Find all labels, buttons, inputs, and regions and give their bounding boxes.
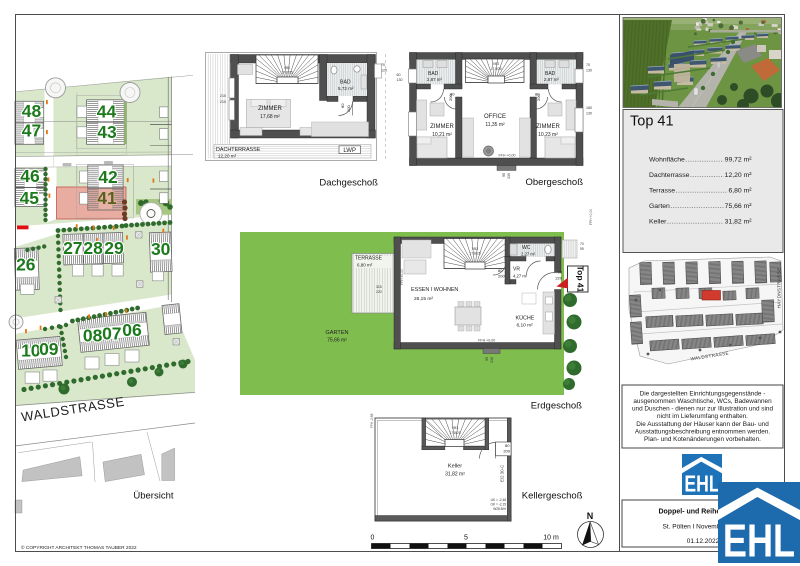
svg-text:26,15 m²: 26,15 m² <box>414 296 433 302</box>
svg-text:WC: WC <box>522 245 531 251</box>
svg-text:130: 130 <box>586 112 592 116</box>
svg-text:60: 60 <box>397 73 401 77</box>
svg-text:46: 46 <box>20 166 40 186</box>
svg-text:80: 80 <box>505 443 510 448</box>
svg-text:Keller: Keller <box>649 219 667 226</box>
svg-text:17,8/25: 17,8/25 <box>281 71 292 75</box>
svg-text:Die dargestellten Einrichtungs: Die dargestellten Einrichtungsgegenständ… <box>640 390 766 397</box>
svg-text:26: 26 <box>16 255 36 275</box>
svg-text:11,35 m²: 11,35 m² <box>485 122 505 128</box>
svg-text:Garten: Garten <box>649 203 670 210</box>
svg-text:Ausstattungsbeschreibung entno: Ausstattungsbeschreibung entnommen werde… <box>635 428 771 435</box>
svg-text:EHL: EHL <box>684 470 719 496</box>
svg-text:FFH -2,88: FFH -2,88 <box>370 413 374 428</box>
svg-text:220: 220 <box>376 290 382 294</box>
svg-text:80: 80 <box>340 103 345 108</box>
svg-text:10 m: 10 m <box>543 535 559 542</box>
svg-text:Terrasse: Terrasse <box>649 188 675 195</box>
svg-text:200: 200 <box>346 105 351 112</box>
svg-text:10,23 m²: 10,23 m² <box>538 132 558 138</box>
svg-text:4,27 m²: 4,27 m² <box>513 274 528 279</box>
svg-text:VB3: VB3 <box>452 426 459 430</box>
svg-text:OK = -2,15: OK = -2,15 <box>490 503 506 507</box>
svg-text:44: 44 <box>97 101 117 121</box>
svg-text:FFH ±0,00: FFH ±0,00 <box>400 269 404 285</box>
svg-text:5,72 m²: 5,72 m² <box>338 86 354 91</box>
svg-text:315: 315 <box>376 285 382 289</box>
svg-text:48: 48 <box>22 101 42 121</box>
svg-text:VB3: VB3 <box>493 62 500 66</box>
svg-text:17,8/25: 17,8/25 <box>449 431 460 435</box>
svg-text:70: 70 <box>586 63 590 67</box>
svg-text:17,8/25: 17,8/25 <box>469 252 480 256</box>
svg-text:Dachterrasse: Dachterrasse <box>649 172 690 179</box>
svg-text:43: 43 <box>97 122 117 142</box>
svg-text:99,72 m²: 99,72 m² <box>725 157 753 164</box>
svg-text:17,68 m²: 17,68 m² <box>260 114 280 120</box>
svg-text:Übersicht: Übersicht <box>133 491 173 502</box>
svg-text:2,87 m²: 2,87 m² <box>427 77 442 82</box>
svg-text:HAYDNSTRASSE: HAYDNSTRASSE <box>777 268 782 309</box>
svg-text:0: 0 <box>371 535 375 542</box>
svg-text:OFFICE: OFFICE <box>484 114 506 120</box>
svg-text:200: 200 <box>536 94 541 101</box>
svg-text:130: 130 <box>397 78 403 82</box>
svg-text:ZIMMER: ZIMMER <box>430 124 454 130</box>
svg-text:130: 130 <box>490 357 494 363</box>
svg-text:EHL: EHL <box>723 515 795 566</box>
svg-text:130: 130 <box>507 173 511 179</box>
svg-text:6,80 m²: 6,80 m² <box>728 188 752 195</box>
svg-text:ZIMMER: ZIMMER <box>536 124 560 130</box>
svg-text:120: 120 <box>381 69 387 73</box>
svg-text:Top 41: Top 41 <box>576 266 586 293</box>
svg-text:DACHTERRASSE: DACHTERRASSE <box>216 147 261 153</box>
svg-text:Obergeschoß: Obergeschoß <box>525 177 583 188</box>
svg-text:200: 200 <box>498 274 505 279</box>
svg-text:ESSEN I WOHNEN: ESSEN I WOHNEN <box>411 287 458 293</box>
svg-text:Kellergeschoß: Kellergeschoß <box>522 490 583 501</box>
svg-text:200: 200 <box>503 448 510 453</box>
svg-text:Dachgeschoß: Dachgeschoß <box>319 177 378 188</box>
svg-text:VR: VR <box>513 267 520 273</box>
svg-text:30: 30 <box>151 239 171 259</box>
svg-text:29: 29 <box>104 238 124 258</box>
svg-text:6,80 m²: 6,80 m² <box>357 263 373 268</box>
svg-text:UK = -2,48: UK = -2,48 <box>491 498 507 502</box>
svg-text:70: 70 <box>580 242 584 246</box>
svg-text:FFH +0,00: FFH +0,00 <box>478 339 495 343</box>
svg-text:42: 42 <box>98 167 118 187</box>
svg-text:180: 180 <box>586 106 592 110</box>
svg-text:10: 10 <box>21 340 41 360</box>
svg-text:FFH +5,80: FFH +5,80 <box>234 94 238 110</box>
svg-text:27: 27 <box>63 238 82 258</box>
svg-text:2,87 m²: 2,87 m² <box>544 77 559 82</box>
svg-text:2,27 m²: 2,27 m² <box>521 252 536 257</box>
svg-text:12,20 m²: 12,20 m² <box>218 154 237 159</box>
svg-text:5: 5 <box>464 535 468 542</box>
svg-text:TERRASSE: TERRASSE <box>355 256 383 262</box>
svg-text:95: 95 <box>502 173 506 177</box>
svg-text:KÜCHE: KÜCHE <box>516 315 535 322</box>
svg-text:210: 210 <box>220 100 226 104</box>
svg-text:07: 07 <box>102 323 121 343</box>
svg-text:47: 47 <box>22 120 41 140</box>
svg-text:Wohnfläche: Wohnfläche <box>649 157 685 164</box>
svg-text:Top 41: Top 41 <box>630 114 674 130</box>
svg-text:31,82 m²: 31,82 m² <box>445 472 465 478</box>
svg-text:06: 06 <box>122 320 142 340</box>
svg-text:Keller: Keller <box>448 464 462 470</box>
svg-text:und Duschen - dienen nur zur I: und Duschen - dienen nur zur Illustratio… <box>632 406 773 413</box>
svg-text:80: 80 <box>498 268 503 273</box>
svg-text:90: 90 <box>558 270 563 275</box>
svg-text:FFH +0,95: FFH +0,95 <box>558 237 562 252</box>
svg-text:95: 95 <box>485 357 489 361</box>
svg-text:130: 130 <box>586 69 592 73</box>
svg-text:ausgenommen Waschtische, WCs,: ausgenommen Waschtische, WCs, Badewannen <box>633 398 772 405</box>
svg-text:BAD: BAD <box>340 80 351 86</box>
svg-text:75,66 m²: 75,66 m² <box>327 338 347 344</box>
svg-text:Die Ausstattung der Häuser kan: Die Ausstattung der Häuser kann der Bau-… <box>636 421 769 428</box>
svg-text:75,66 m²: 75,66 m² <box>725 203 753 210</box>
svg-text:200: 200 <box>448 94 453 101</box>
svg-text:95: 95 <box>580 247 584 251</box>
svg-text:Plan- und Kotenänderungen vorb: Plan- und Kotenänderungen vorbehalten. <box>644 436 761 443</box>
svg-text:41: 41 <box>97 188 117 208</box>
svg-text:31,82 m²: 31,82 m² <box>725 219 753 226</box>
svg-text:FFH +0,00: FFH +0,00 <box>498 154 515 158</box>
svg-text:28: 28 <box>83 238 103 258</box>
svg-text:GARTEN: GARTEN <box>325 330 348 336</box>
svg-text:VB3: VB3 <box>472 247 479 251</box>
svg-text:8,10 m²: 8,10 m² <box>517 323 534 329</box>
svg-text:FFH +0,00: FFH +0,00 <box>589 209 593 225</box>
svg-text:Erdgeschoß: Erdgeschoß <box>531 401 582 412</box>
svg-text:17,8/25: 17,8/25 <box>490 67 501 71</box>
svg-text:VB3: VB3 <box>284 66 291 70</box>
svg-text:ZIMMER: ZIMMER <box>258 106 282 112</box>
svg-text:10,21 m²: 10,21 m² <box>432 132 452 138</box>
svg-text:LWP: LWP <box>343 148 356 154</box>
svg-text:© COPYRIGHT ARCHITEKT THOMAS T: © COPYRIGHT ARCHITEKT THOMAS TAUBER 2022 <box>21 544 137 551</box>
svg-text:01.12.2022: 01.12.2022 <box>687 538 720 545</box>
svg-text:210: 210 <box>220 94 226 98</box>
svg-text:09: 09 <box>39 339 59 359</box>
svg-text:W28 B/H: W28 B/H <box>493 507 506 511</box>
svg-text:nicht im Lieferumfang enthalte: nicht im Lieferumfang enthalten. <box>657 413 748 420</box>
svg-text:08: 08 <box>83 326 103 346</box>
svg-text:EI2 30-C: EI2 30-C <box>500 465 505 482</box>
svg-text:12,20 m²: 12,20 m² <box>725 172 753 179</box>
svg-text:N: N <box>587 511 594 521</box>
svg-text:45: 45 <box>20 188 40 208</box>
svg-text:220: 220 <box>555 276 562 281</box>
